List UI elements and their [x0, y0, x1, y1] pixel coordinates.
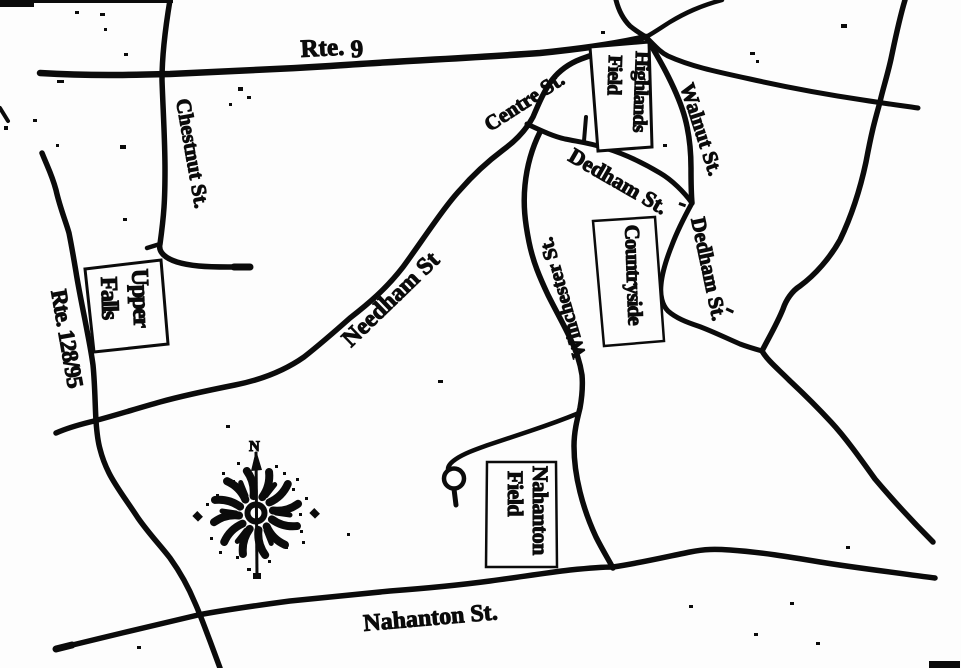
- svg-text:Nahanton: Nahanton: [528, 466, 553, 555]
- svg-text:Rte. 9: Rte. 9: [300, 33, 364, 66]
- svg-text:Falls: Falls: [95, 276, 122, 320]
- svg-text:Countryside: Countryside: [620, 224, 647, 325]
- svg-text:Highlands: Highlands: [628, 51, 653, 133]
- svg-text:Upper: Upper: [126, 268, 154, 329]
- svg-text:N: N: [249, 439, 260, 455]
- svg-text:Field: Field: [603, 55, 626, 96]
- svg-text:Field: Field: [503, 471, 528, 516]
